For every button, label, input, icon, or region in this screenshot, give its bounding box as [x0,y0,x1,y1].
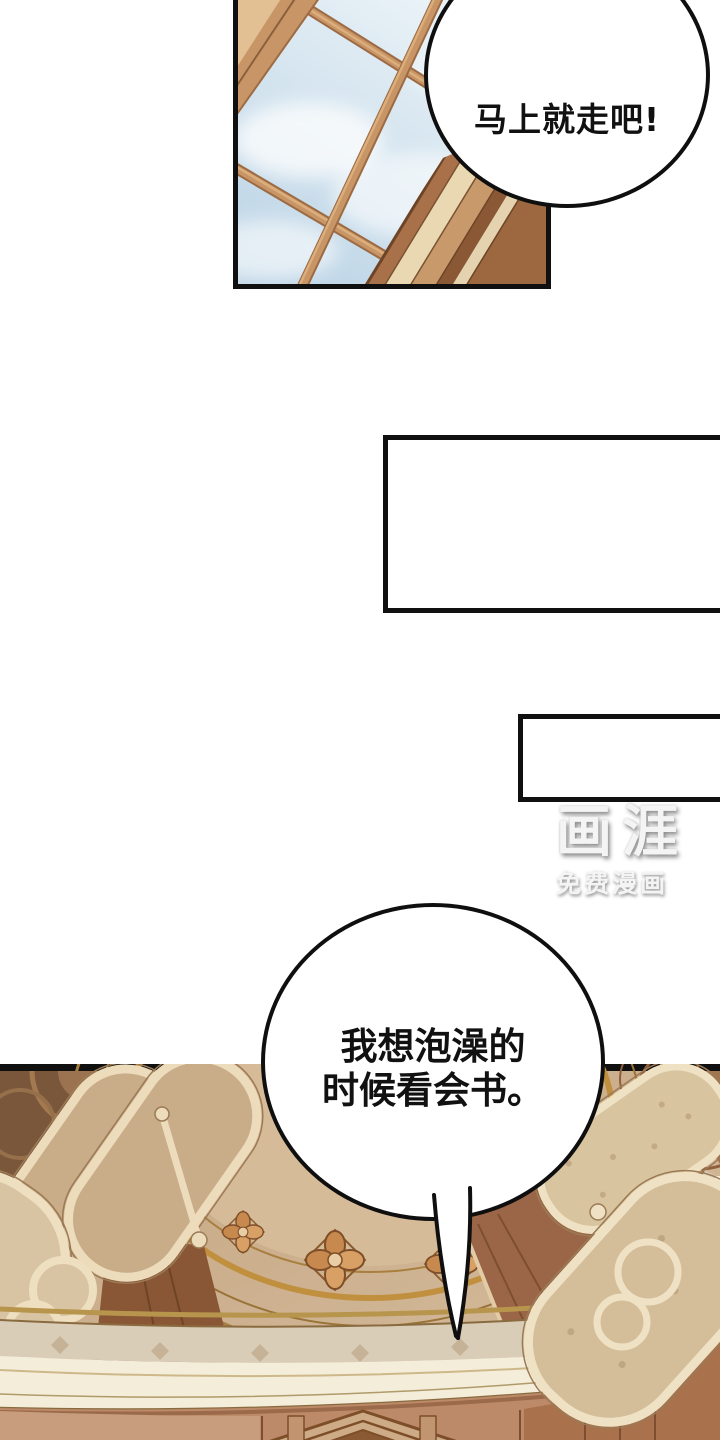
speech-bubble-tail [420,1180,490,1345]
speech-bubble-bottom: 我想泡澡的 时候看会书。 [261,903,605,1221]
door-pediment [268,1411,458,1440]
speech-text-top: 马上就走吧! [474,103,660,136]
panel-empty-1 [383,435,720,613]
comic-page: 马上就走吧! 画涯 免费漫画 [0,0,720,1440]
speech-text-bottom-line2: 时候看会书。 [322,1069,544,1113]
speech-text-bottom-line1: 我想泡澡的 [322,1025,544,1069]
watermark-subtitle: 免费漫画 [556,864,720,900]
watermark-logo: 画涯 [556,804,720,863]
panel-empty-2 [518,714,720,802]
watermark: 画涯 免费漫画 [556,804,720,900]
speech-text-bottom: 我想泡澡的 时候看会书。 [322,1025,544,1114]
